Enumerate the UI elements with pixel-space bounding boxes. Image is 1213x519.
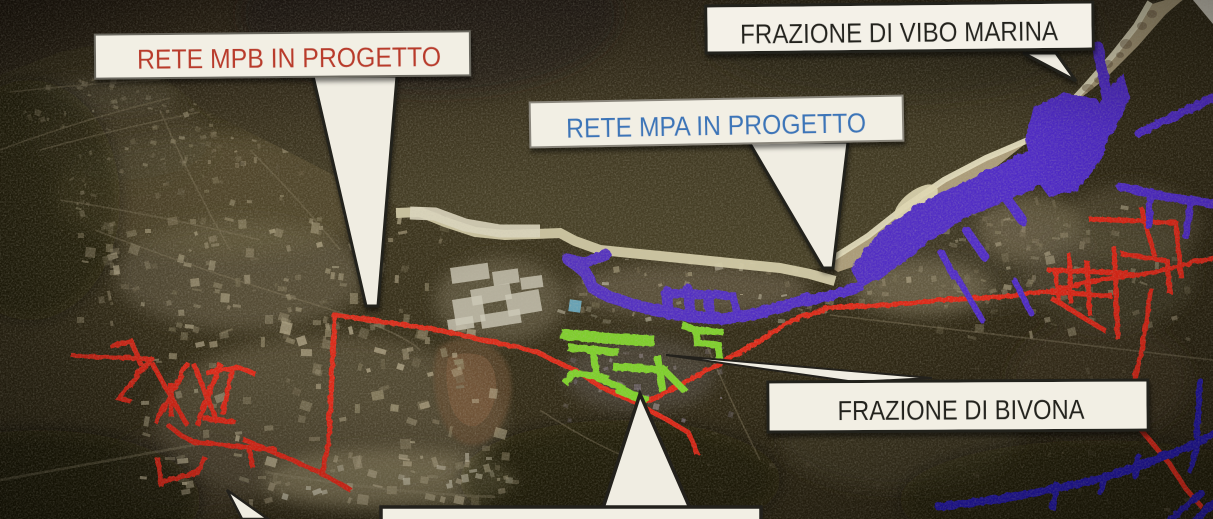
svg-text:FRAZIONE DI BIVONA: FRAZIONE DI BIVONA <box>837 394 1084 426</box>
svg-text:RETE MPA IN PROGETTO: RETE MPA IN PROGETTO <box>566 107 867 143</box>
svg-text:RETE MPB IN PROGETTO: RETE MPB IN PROGETTO <box>137 41 441 75</box>
svg-text:FRAZIONE DI VIBO MARINA: FRAZIONE DI VIBO MARINA <box>740 15 1059 49</box>
